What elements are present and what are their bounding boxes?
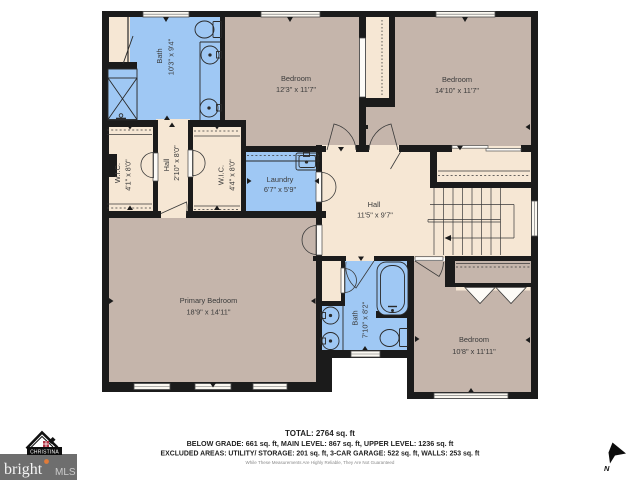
svg-text:EXCLUDED AREAS: UTILITY/ STORA: EXCLUDED AREAS: UTILITY/ STORAGE: 201 sq… [161,451,481,458]
svg-text:TOTAL: 2764 sq. ft: TOTAL: 2764 sq. ft [285,429,355,438]
svg-text:BELOW GRADE: 661 sq. ft, MAIN: BELOW GRADE: 661 sq. ft, MAIN LEVEL: 867… [187,439,454,448]
svg-text:W.I.C.: W.I.C. [217,165,226,185]
svg-text:Laundry: Laundry [267,175,294,184]
svg-text:4'4" x 8'0": 4'4" x 8'0" [228,159,237,191]
svg-text:6'7" x 5'9": 6'7" x 5'9" [264,185,297,194]
svg-text:10'3" x 9'4": 10'3" x 9'4" [167,38,176,75]
svg-text:12'3" x 11'7": 12'3" x 11'7" [276,85,316,94]
svg-text:10'8" x 11'11": 10'8" x 11'11" [452,347,496,356]
svg-text:Bedroom: Bedroom [281,74,311,83]
svg-text:11'5" x 9'7": 11'5" x 9'7" [357,211,393,220]
svg-text:Bath: Bath [351,310,360,325]
svg-text:bright: bright [4,461,43,478]
svg-text:Bedroom: Bedroom [459,335,489,344]
svg-text:W.I.C.: W.I.C. [113,163,122,183]
svg-text:14'10" x 11'7": 14'10" x 11'7" [435,86,479,95]
svg-text:Primary Bedroom: Primary Bedroom [180,296,238,305]
svg-text:Hall: Hall [162,158,171,171]
svg-text:Hall: Hall [368,200,381,209]
svg-text:7'10" x 8'2": 7'10" x 8'2" [361,301,370,338]
svg-text:CHRISTINA: CHRISTINA [30,450,59,456]
svg-text:Bedroom: Bedroom [442,75,472,84]
svg-text:N: N [604,464,610,473]
svg-text:MLS: MLS [55,467,76,478]
svg-text:4'1" x 8'0": 4'1" x 8'0" [124,159,133,191]
svg-text:Bath: Bath [155,48,164,63]
svg-text:18'9" x 14'11": 18'9" x 14'11" [186,308,230,317]
svg-text:While These Measurements Are H: While These Measurements Are Highly Reli… [246,460,395,465]
svg-text:2'10" x 8'0": 2'10" x 8'0" [172,145,181,181]
